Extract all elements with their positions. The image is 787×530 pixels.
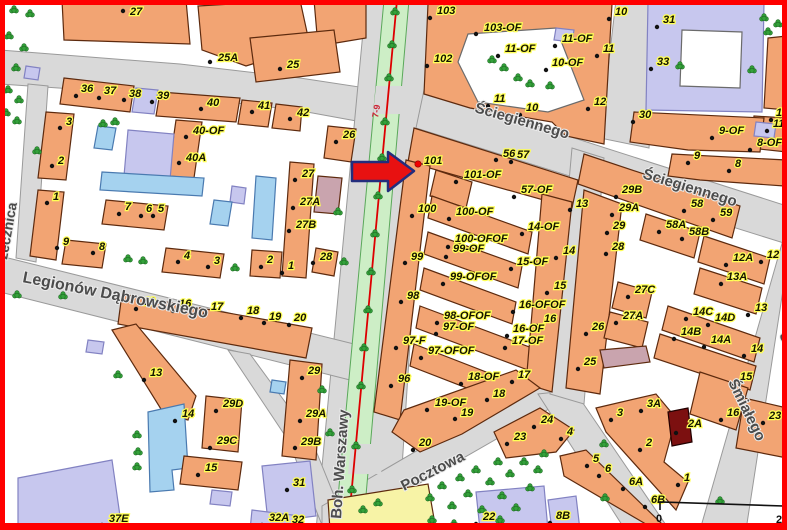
address-dot [614, 195, 618, 199]
tree-lobe [359, 384, 363, 388]
address-dot [411, 448, 415, 452]
address-label: 97-OFOF [428, 345, 475, 357]
address-dot [419, 356, 423, 360]
address-label: 16-OFOF [519, 299, 566, 311]
address-dot [631, 120, 635, 124]
address-label: 6 [605, 463, 612, 475]
address-label: 14C [693, 306, 714, 318]
address-label: 27 [129, 6, 143, 18]
address-label: 1 [288, 260, 294, 272]
tree-lobe [350, 488, 354, 492]
address-label: 26 [591, 321, 605, 333]
address-dot [676, 483, 680, 487]
tree-lobe [14, 66, 18, 70]
address-label: 40 [206, 97, 220, 109]
address-dot [444, 255, 448, 259]
tree-lobe [383, 120, 387, 124]
address-label: 57 [517, 149, 530, 161]
address-label: 4 [566, 426, 573, 438]
address-dot [285, 488, 289, 492]
building [210, 490, 232, 506]
address-dot [259, 265, 263, 269]
address-dot [91, 251, 95, 255]
address-label: 101-OF [464, 169, 502, 181]
address-label: 12 [767, 249, 779, 261]
address-dot [657, 230, 661, 234]
address-dot [610, 213, 614, 217]
address-dot [280, 271, 284, 275]
tree-lobe [328, 431, 332, 435]
address-label: 26 [342, 129, 356, 141]
map-canvas[interactable]: 2725A253637383940414240-OF40A32262727A27… [0, 0, 787, 530]
tree-lobe [776, 22, 780, 26]
address-label: 27A [622, 310, 643, 322]
address-label: 14B [681, 326, 701, 338]
address-dot [117, 212, 121, 216]
tree-lobe [502, 66, 506, 70]
tree-lobe [602, 442, 606, 446]
address-dot [199, 107, 203, 111]
address-dot [58, 126, 62, 130]
address-dot [742, 354, 746, 358]
address-label: 56 [503, 148, 516, 160]
address-dot [184, 135, 188, 139]
address-label: 15-OF [517, 256, 548, 268]
tree-lobe [17, 98, 21, 102]
address-dot [719, 282, 723, 286]
address-label: 2 [57, 155, 64, 167]
address-dot [553, 44, 557, 48]
address-label: 100 [418, 203, 437, 215]
address-dot [511, 310, 515, 314]
address-dot [334, 140, 338, 144]
address-dot [288, 117, 292, 121]
address-label: 102 [434, 53, 452, 65]
address-label: 14 [182, 408, 194, 420]
tree-lobe [718, 499, 722, 503]
address-label: 17 [518, 369, 531, 381]
address-dot [724, 263, 728, 267]
border-left [0, 0, 5, 530]
address-label: 18 [493, 388, 506, 400]
tree-lobe [393, 10, 397, 14]
address-dot [748, 148, 752, 152]
address-dot [585, 464, 589, 468]
address-dot [682, 209, 686, 213]
address-label: 99 [411, 251, 424, 263]
tree-lobe [450, 504, 454, 508]
address-label: 29A [618, 202, 639, 214]
tree-lobe [342, 260, 346, 264]
address-dot [206, 265, 210, 269]
address-dot [293, 446, 297, 450]
address-label: 6 [146, 203, 153, 215]
address-label: 30 [639, 109, 652, 121]
address-dot [287, 323, 291, 327]
tree-lobe [522, 460, 526, 464]
address-label: 18 [247, 305, 260, 317]
address-label: 29C [216, 435, 238, 447]
address-label: 2 [645, 437, 652, 449]
address-dot [710, 136, 714, 140]
address-label: 98 [407, 290, 420, 302]
building [124, 130, 174, 180]
tree-lobe [474, 468, 478, 472]
address-label: 27A [299, 196, 320, 208]
address-dot [496, 54, 500, 58]
address-label: 3 [617, 407, 623, 419]
tree-lobe [35, 149, 39, 153]
address-dot [485, 398, 489, 402]
address-dot [684, 317, 688, 321]
tree-lobe [101, 122, 105, 126]
address-dot [298, 419, 302, 423]
tree-lobe [548, 84, 552, 88]
address-dot [505, 334, 509, 338]
address-dot [765, 129, 769, 133]
building [250, 250, 282, 278]
address-dot [702, 345, 706, 349]
tree-lobe [466, 492, 470, 496]
tree-lobe [61, 294, 65, 298]
border-top [0, 0, 787, 5]
address-label: 29B [621, 184, 642, 196]
address-label: 40A [185, 152, 206, 164]
tree-lobe [750, 68, 754, 72]
address-dot [150, 100, 154, 104]
address-dot [399, 300, 403, 304]
address-label: 9 [694, 150, 701, 162]
address-label: 33 [657, 56, 669, 68]
address-dot [434, 332, 438, 336]
address-label: 27C [634, 284, 656, 296]
address-label: 11-OF [505, 43, 536, 55]
address-dot [545, 291, 549, 295]
address-label: 8 [99, 241, 106, 253]
address-dot [55, 246, 59, 250]
address-label: 23 [513, 431, 526, 443]
building [86, 340, 104, 354]
address-label: 17 [211, 301, 224, 313]
address-label: 15 [205, 462, 218, 474]
address-label: 100-OF [456, 206, 494, 218]
address-dot [50, 164, 54, 168]
address-dot [250, 110, 254, 114]
address-dot [614, 321, 618, 325]
address-dot [435, 321, 439, 325]
address-label: 31 [663, 14, 675, 26]
address-dot [711, 218, 715, 222]
address-label: 12 [594, 96, 606, 108]
address-dot [604, 252, 608, 256]
address-dot [576, 367, 580, 371]
address-dot [239, 316, 243, 320]
address-dot [428, 16, 432, 20]
tree-lobe [361, 508, 365, 512]
tree-lobe [336, 210, 340, 214]
address-label: 58B [689, 226, 709, 238]
tree-lobe [135, 433, 139, 437]
address-label: 99-OF [453, 243, 484, 255]
address-label: 5 [158, 203, 165, 215]
address-dot [394, 346, 398, 350]
address-dot [121, 9, 125, 13]
address-label: 13 [150, 367, 162, 379]
address-dot [554, 256, 558, 260]
address-label: 14 [563, 245, 575, 257]
address-dot [509, 267, 513, 271]
address-dot [176, 260, 180, 264]
address-label: 4 [183, 250, 190, 262]
address-label: 16 [544, 313, 557, 325]
tree-lobe [428, 496, 432, 500]
address-label: 14A [711, 334, 731, 346]
address-dot [441, 282, 445, 286]
address-label: 13 [576, 198, 588, 210]
tree-lobe [603, 496, 607, 500]
address-dot [674, 431, 678, 435]
tree-lobe [141, 259, 145, 263]
tree-lobe [500, 494, 504, 498]
tree-lobe [528, 82, 532, 86]
address-dot [196, 473, 200, 477]
address-dot [639, 409, 643, 413]
address-dot [447, 217, 451, 221]
tree-lobe [496, 460, 500, 464]
address-label: 3A [647, 398, 661, 410]
address-label: 9-OF [719, 125, 744, 137]
tree-lobe [508, 472, 512, 476]
address-label: 27 [301, 168, 315, 180]
address-dot [425, 408, 429, 412]
address-dot [597, 474, 601, 478]
address-dot [208, 446, 212, 450]
address-dot [520, 232, 524, 236]
address-dot [727, 169, 731, 173]
tree-lobe [390, 43, 394, 47]
address-dot [568, 208, 572, 212]
tree-lobe [116, 373, 120, 377]
address-label: 16-OF [513, 323, 544, 335]
tree-lobe [514, 506, 518, 510]
address-label: 18-OF [468, 371, 499, 383]
address-dot [719, 418, 723, 422]
address-label: 29 [307, 365, 321, 377]
tree-lobe [22, 46, 26, 50]
address-label: 1 [53, 191, 59, 203]
city-map[interactable]: 2725A253637383940414240-OF40A32262727A27… [0, 0, 787, 530]
address-label: 1 [684, 472, 690, 484]
address-label: 7 [125, 201, 132, 213]
address-label: 25 [286, 59, 300, 71]
address-label: 2A [687, 418, 702, 430]
address-label: 22 [482, 511, 495, 523]
tree-lobe [458, 476, 462, 480]
address-dot [532, 425, 536, 429]
address-dot [595, 54, 599, 58]
address-dot [643, 505, 647, 509]
address-label: 25 [583, 356, 597, 368]
address-label: 13 [755, 302, 767, 314]
building [270, 380, 286, 394]
tree-lobe [136, 450, 140, 454]
address-dot [300, 376, 304, 380]
tree-lobe [678, 64, 682, 68]
address-dot [287, 229, 291, 233]
address-dot [609, 418, 613, 422]
address-label: 3 [214, 255, 220, 267]
address-dot [142, 378, 146, 382]
address-label: 8 [735, 158, 742, 170]
address-label: 14-OF [528, 221, 559, 233]
address-label: 15 [554, 280, 567, 292]
address-dot [139, 214, 143, 218]
address-label: 29 [612, 220, 626, 232]
address-dot [672, 337, 676, 341]
address-dot [173, 419, 177, 423]
address-label: 29D [222, 398, 243, 410]
building [62, 0, 190, 44]
address-dot [638, 448, 642, 452]
address-label: 12A [733, 252, 753, 264]
tree-lobe [488, 480, 492, 484]
address-label: 31 [293, 477, 305, 489]
address-label: 58A [666, 219, 686, 231]
tree-lobe [528, 486, 532, 490]
address-dot [686, 161, 690, 165]
address-dot [177, 161, 181, 165]
tree-lobe [490, 58, 494, 62]
tree-lobe [369, 270, 373, 274]
address-label: 101 [424, 155, 442, 167]
address-dot [291, 206, 295, 210]
address-dot [494, 158, 498, 162]
building [250, 30, 340, 82]
address-dot [262, 321, 266, 325]
address-label: 96 [398, 373, 411, 385]
address-label: 29A [305, 408, 326, 420]
address-dot [45, 201, 49, 205]
address-dot [759, 260, 763, 264]
tree-lobe [766, 30, 770, 34]
address-label: 40-OF [192, 125, 224, 137]
address-dot [214, 409, 218, 413]
target-red-dot [415, 161, 421, 167]
address-label: 103 [437, 5, 455, 17]
courtyard [680, 30, 742, 88]
building [94, 126, 116, 150]
address-label: 11 [603, 43, 614, 55]
tree-lobe [536, 468, 540, 472]
address-label: 37 [104, 85, 117, 97]
address-dot [74, 94, 78, 98]
tree-lobe [373, 232, 377, 236]
address-dot [474, 32, 478, 36]
border-bottom [0, 523, 787, 530]
tree-lobe [28, 12, 32, 16]
address-dot [410, 214, 414, 218]
address-dot [605, 231, 609, 235]
address-label: 17-OF [512, 335, 543, 347]
address-label: 11-OF [562, 33, 593, 45]
building [252, 176, 276, 240]
address-label: 14D [715, 312, 735, 324]
address-label: 32A [269, 512, 289, 524]
address-dot [584, 332, 588, 336]
address-label: 9 [63, 236, 70, 248]
tree-lobe [126, 257, 130, 261]
address-dot [512, 195, 516, 199]
tree-lobe [362, 346, 366, 350]
address-label: 13A [727, 271, 747, 283]
tree-lobe [354, 444, 358, 448]
address-dot [706, 323, 710, 327]
building [230, 186, 246, 204]
address-dot [151, 214, 155, 218]
address-label: 25A [217, 52, 238, 64]
address-label: 20 [293, 312, 307, 324]
address-label: 5 [593, 453, 600, 465]
address-dot [621, 487, 625, 491]
address-label: 28 [319, 251, 333, 263]
tree-lobe [12, 8, 16, 12]
address-dot [453, 417, 457, 421]
tree-lobe [380, 156, 384, 160]
address-label: 19 [461, 407, 474, 419]
address-label: 38 [129, 88, 142, 100]
address-dot [403, 261, 407, 265]
address-dot [208, 60, 212, 64]
address-label: 27B [295, 219, 316, 231]
address-label: 28 [611, 241, 625, 253]
address-label: 10 [615, 6, 628, 18]
address-label: 8-OF [757, 137, 782, 149]
tree-lobe [762, 16, 766, 20]
address-dot [503, 346, 507, 350]
tree-lobe [113, 120, 117, 124]
address-dot [746, 313, 750, 317]
tree-lobe [15, 293, 19, 297]
address-dot [454, 180, 458, 184]
address-label: 39 [157, 90, 170, 102]
address-label: 41 [257, 100, 270, 112]
address-label: 97-F [403, 335, 426, 347]
address-dot [293, 178, 297, 182]
address-label: 99-OFOF [450, 271, 497, 283]
tree-lobe [233, 266, 237, 270]
building [210, 200, 232, 226]
address-label: 10 [526, 102, 539, 114]
tree-lobe [366, 308, 370, 312]
tree-lobe [376, 501, 380, 505]
address-label: 6A [629, 476, 643, 488]
address-dot [311, 261, 315, 265]
address-label: 10-OF [552, 57, 583, 69]
address-dot [510, 380, 514, 384]
address-label: 57-OF [521, 184, 552, 196]
address-dot [389, 384, 393, 388]
address-label: 14 [751, 343, 763, 355]
address-dot [559, 437, 563, 441]
address-dot [278, 67, 282, 71]
building [24, 66, 40, 80]
address-dot [544, 68, 548, 72]
address-label: 11 [494, 93, 505, 105]
tree-lobe [15, 119, 19, 123]
tree-lobe [430, 518, 434, 522]
address-label: 2 [266, 254, 273, 266]
address-dot [509, 160, 513, 164]
